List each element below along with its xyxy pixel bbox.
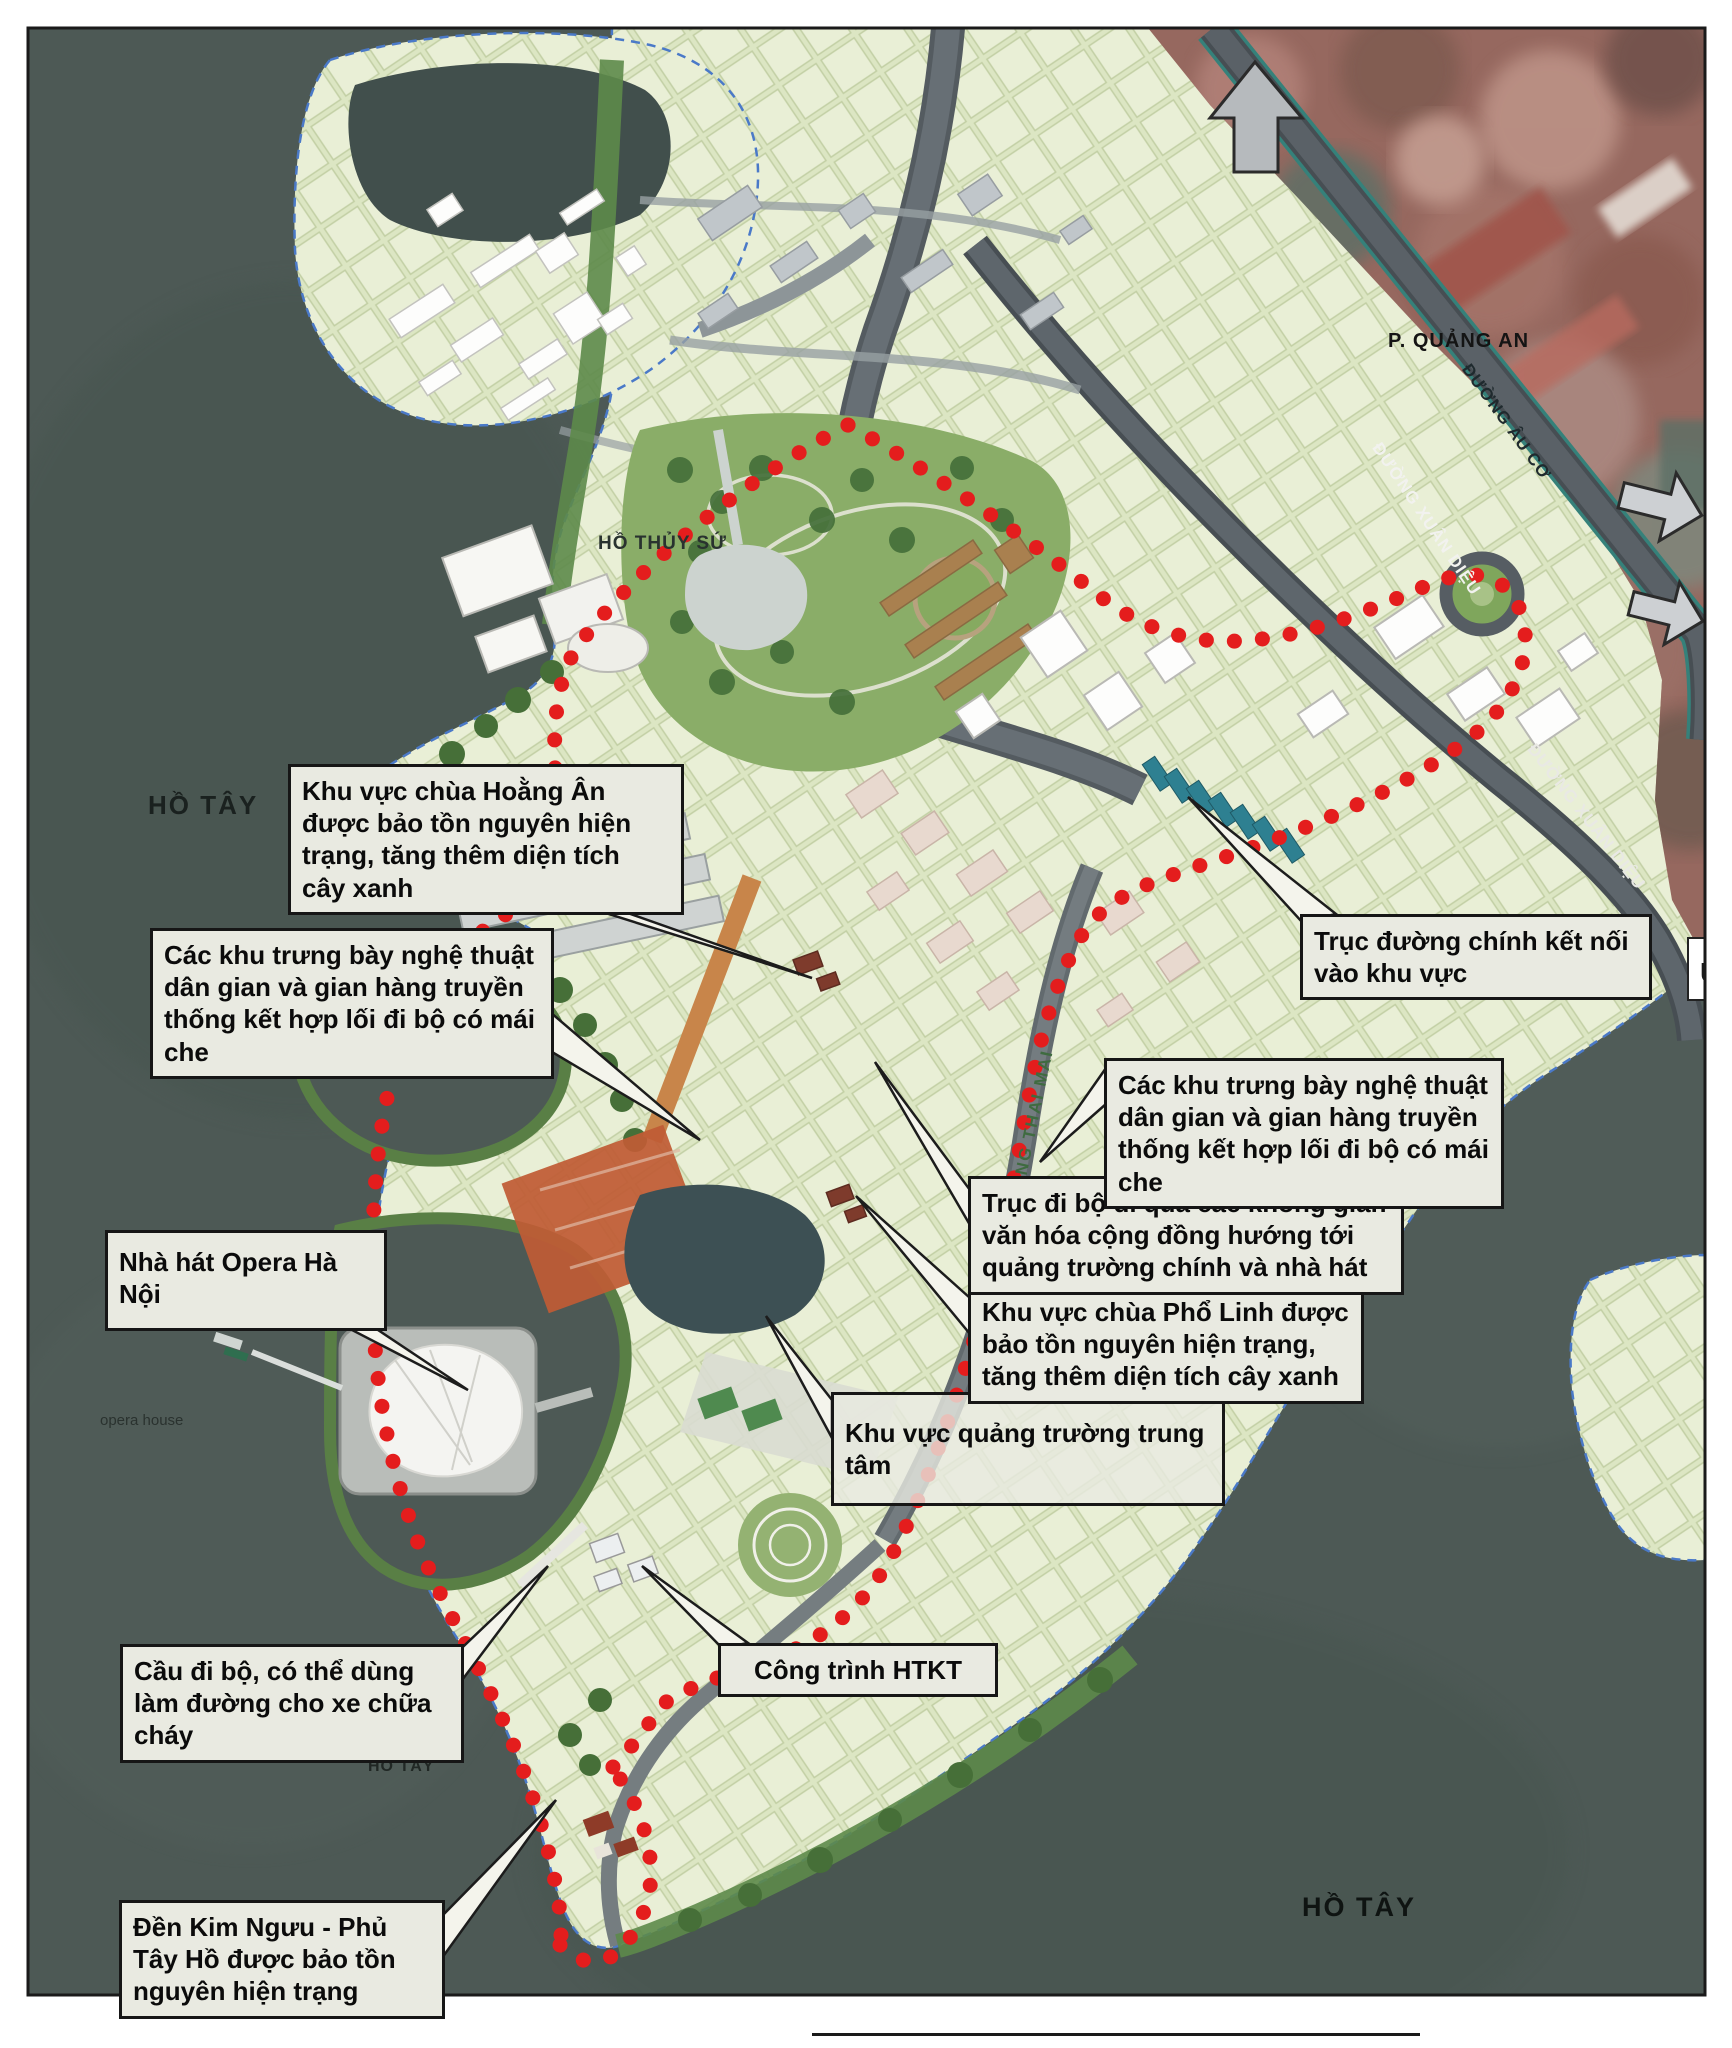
callout-cong-trinh-htkt: Công trình HTKT <box>718 1643 998 1697</box>
label-ho-tay-left: HỒ TÂY <box>148 790 258 821</box>
bottom-rule <box>812 2033 1420 2036</box>
callout-truc-duong-chinh: Trục đường chính kết nối vào khu vực <box>1300 914 1652 1000</box>
label-quang-an: P. QUẢNG AN <box>1388 330 1529 353</box>
label-ho-tay-right: HỒ TÂY <box>1302 1892 1416 1923</box>
callout-trung-bay-right: Các khu trưng bày nghệ thuật dân gian và… <box>1104 1058 1504 1209</box>
plan-map-page: U ĐƯỜNG ÂU CƠ ĐƯỜNG XUÂN DIỆU ĐƯỜNG XUÂN… <box>0 0 1732 2048</box>
callout-chua-hoang-an: Khu vực chùa Hoằng Ân được bảo tồn nguyê… <box>288 764 684 915</box>
edge-partial-label: U <box>1700 957 1720 988</box>
callout-den-kim-nguu: Đền Kim Ngưu - Phủ Tây Hồ được bảo tồn n… <box>119 1900 445 2019</box>
callout-quang-truong: Khu vực quảng trường trung tâm <box>831 1392 1225 1506</box>
label-ho-thuy-su: HỒ THỦY SỨ <box>598 533 727 555</box>
label-opera-house: opera house <box>100 1412 183 1429</box>
callout-cau-di-bo: Cầu đi bộ, có thể dùng làm đường cho xe … <box>120 1644 464 1763</box>
callout-chua-pho-linh: Khu vực chùa Phổ Linh được bảo tồn nguyê… <box>968 1285 1364 1404</box>
callout-trung-bay-left: Các khu trưng bày nghệ thuật dân gian và… <box>150 928 554 1079</box>
callout-opera: Nhà hát Opera Hà Nội <box>105 1230 387 1331</box>
